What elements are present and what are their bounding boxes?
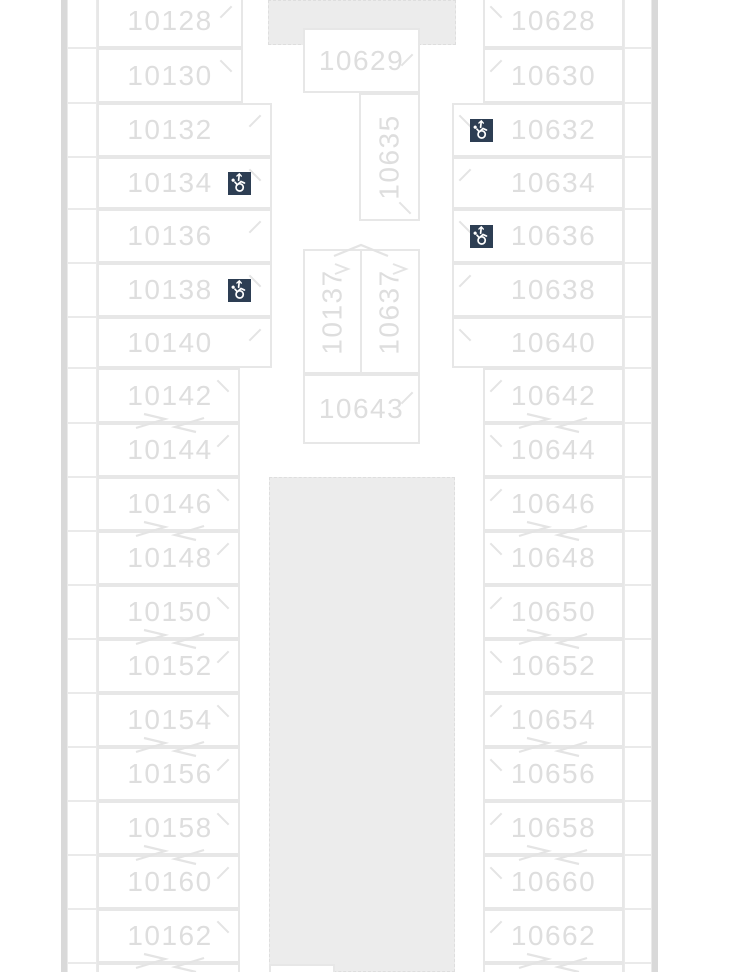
accessible-icon xyxy=(228,279,251,302)
balcony-cell xyxy=(67,909,97,963)
balcony-cell xyxy=(624,585,652,639)
cabin-10162[interactable] xyxy=(97,909,240,963)
balcony-cell xyxy=(624,477,652,531)
balcony-cell xyxy=(624,801,652,855)
balcony-cell xyxy=(67,317,97,368)
balcony-cell xyxy=(67,477,97,531)
cabin-10132[interactable] xyxy=(97,103,272,157)
cabin-10630[interactable] xyxy=(483,48,624,103)
balcony-cell xyxy=(624,263,652,317)
balcony-cell xyxy=(624,368,652,423)
balcony-cell xyxy=(624,855,652,909)
cabin-10154[interactable] xyxy=(97,693,240,747)
accessible-icon xyxy=(470,225,493,248)
balcony-cell xyxy=(67,693,97,747)
cabin-10650[interactable] xyxy=(483,585,624,639)
balcony-cell xyxy=(67,263,97,317)
cabin-10156[interactable] xyxy=(97,747,240,801)
balcony-cell xyxy=(624,317,652,368)
deck-plan: 1012810628101301063010132106321013410634… xyxy=(0,0,754,972)
balcony-cell xyxy=(67,585,97,639)
accessible-icon xyxy=(228,172,251,195)
cabin-10142[interactable] xyxy=(97,368,240,423)
balcony-cell xyxy=(624,103,652,157)
cabin-10140[interactable] xyxy=(97,317,272,368)
cabin-10640[interactable] xyxy=(452,317,624,368)
cabin-10146[interactable] xyxy=(97,477,240,531)
cabin-10148[interactable] xyxy=(97,531,240,585)
balcony-cell xyxy=(67,368,97,423)
balcony-cell xyxy=(624,639,652,693)
cabin-10144[interactable] xyxy=(97,423,240,477)
balcony-cell xyxy=(67,747,97,801)
balcony-cell xyxy=(624,0,652,48)
balcony-cell xyxy=(67,423,97,477)
cabin-10160[interactable] xyxy=(97,855,240,909)
cabin-10646[interactable] xyxy=(483,477,624,531)
cabin-10658[interactable] xyxy=(483,801,624,855)
cabin-10137[interactable] xyxy=(303,249,362,374)
cabin-10643[interactable] xyxy=(303,374,420,444)
cabin-10136[interactable] xyxy=(97,209,272,263)
cabin-partial[interactable] xyxy=(97,963,240,972)
cabin-10130[interactable] xyxy=(97,48,243,103)
cabin-10152[interactable] xyxy=(97,639,240,693)
cabin-10638[interactable] xyxy=(452,263,624,317)
balcony-cell xyxy=(624,423,652,477)
balcony-cell xyxy=(624,747,652,801)
cabin-10656[interactable] xyxy=(483,747,624,801)
balcony-cell xyxy=(624,48,652,103)
balcony-cell xyxy=(67,639,97,693)
public-area-center xyxy=(269,477,455,972)
balcony-cell xyxy=(67,48,97,103)
cabin-10652[interactable] xyxy=(483,639,624,693)
balcony-cell xyxy=(624,531,652,585)
cabin-10629[interactable] xyxy=(303,28,420,93)
balcony-cell xyxy=(67,963,97,972)
balcony-cell xyxy=(624,209,652,263)
cabin-10634[interactable] xyxy=(452,157,624,209)
balcony-cell xyxy=(67,531,97,585)
cabin-10637[interactable] xyxy=(360,249,420,374)
hull-band-right xyxy=(652,0,658,972)
accessible-icon xyxy=(470,119,493,142)
balcony-cell xyxy=(624,909,652,963)
balcony-cell xyxy=(67,0,97,48)
cabin-10642[interactable] xyxy=(483,368,624,423)
balcony-cell xyxy=(624,157,652,209)
balcony-cell xyxy=(67,855,97,909)
balcony-cell xyxy=(67,157,97,209)
cabin-10660[interactable] xyxy=(483,855,624,909)
balcony-cell xyxy=(67,801,97,855)
balcony-cell xyxy=(67,103,97,157)
cabin-10128[interactable] xyxy=(97,0,243,48)
cabin-partial[interactable] xyxy=(483,963,624,972)
cabin-10662[interactable] xyxy=(483,909,624,963)
cabin-10158[interactable] xyxy=(97,801,240,855)
cabin-partial[interactable] xyxy=(269,964,335,972)
balcony-cell xyxy=(67,209,97,263)
balcony-cell xyxy=(624,693,652,747)
cabin-10648[interactable] xyxy=(483,531,624,585)
cabin-10644[interactable] xyxy=(483,423,624,477)
cabin-10654[interactable] xyxy=(483,693,624,747)
cabin-10628[interactable] xyxy=(483,0,624,48)
cabin-10635[interactable] xyxy=(359,93,420,221)
cabin-10150[interactable] xyxy=(97,585,240,639)
balcony-cell xyxy=(624,963,652,972)
